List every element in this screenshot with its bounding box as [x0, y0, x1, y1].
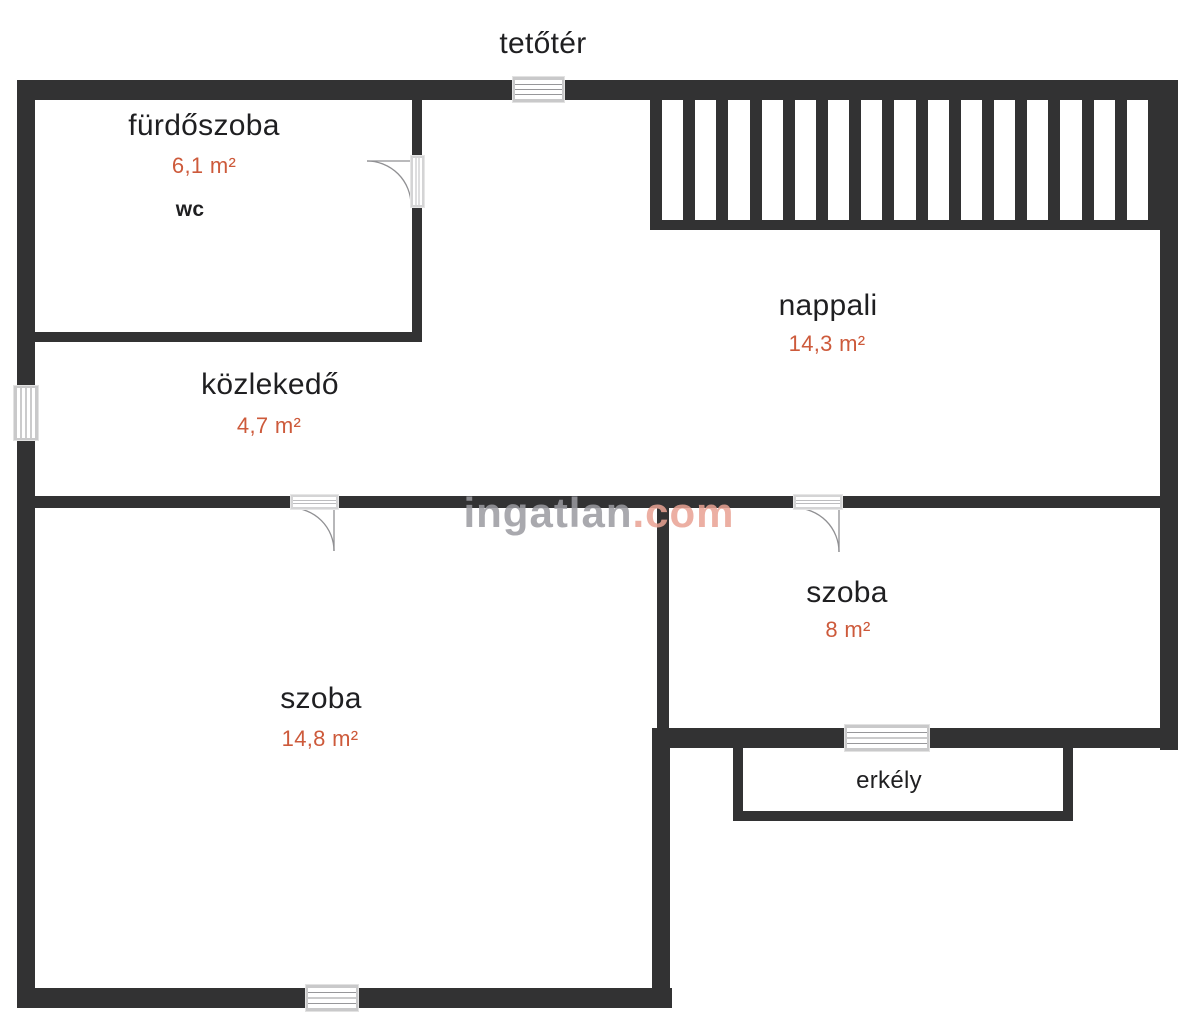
room-balcony-label: erkély [856, 767, 922, 795]
watermark: ingatlan.com [463, 489, 734, 537]
door-glass [413, 158, 422, 205]
room-small-area: 8 m² [825, 617, 870, 643]
watermark-accent: .com [632, 489, 734, 536]
room-bathroom-label: fürdőszoba [128, 109, 279, 143]
window-left [14, 386, 38, 440]
room-bathroom-area: 6,1 m² [172, 153, 236, 179]
room-livingroom-label: nappali [779, 289, 878, 323]
room-hallway-label: közlekedő [201, 368, 339, 402]
room-livingroom-area: 14,3 m² [789, 331, 866, 357]
watermark-main: ingatlan [463, 489, 632, 536]
room-hallway-area: 4,7 m² [237, 413, 301, 439]
room-large-label: szoba [280, 682, 362, 716]
window-glass [515, 80, 562, 99]
window-top [513, 77, 564, 102]
room-small-label: szoba [806, 576, 888, 610]
room-large-area: 14,8 m² [282, 726, 359, 752]
window-glass [308, 988, 356, 1008]
door-room-small-arc [795, 508, 839, 552]
window-glass [17, 388, 35, 438]
room-bathroom-wc-label: wc [176, 198, 205, 222]
door-room-small-jamb [794, 495, 842, 509]
door-bathroom-jamb [411, 156, 424, 207]
floor-plan: tetőtér fürdőszoba 6,1 m² wc közlek [0, 0, 1195, 1024]
window-bottom [306, 985, 358, 1011]
window-glass [847, 728, 927, 748]
window-balcony [845, 725, 929, 751]
door-glass [796, 497, 840, 507]
door-glass [293, 497, 336, 507]
door-room-large-jamb [291, 495, 338, 509]
door-room-large-arc [291, 508, 334, 551]
plan-title: tetőtér [499, 27, 586, 61]
door-bathroom-arc [367, 161, 411, 205]
